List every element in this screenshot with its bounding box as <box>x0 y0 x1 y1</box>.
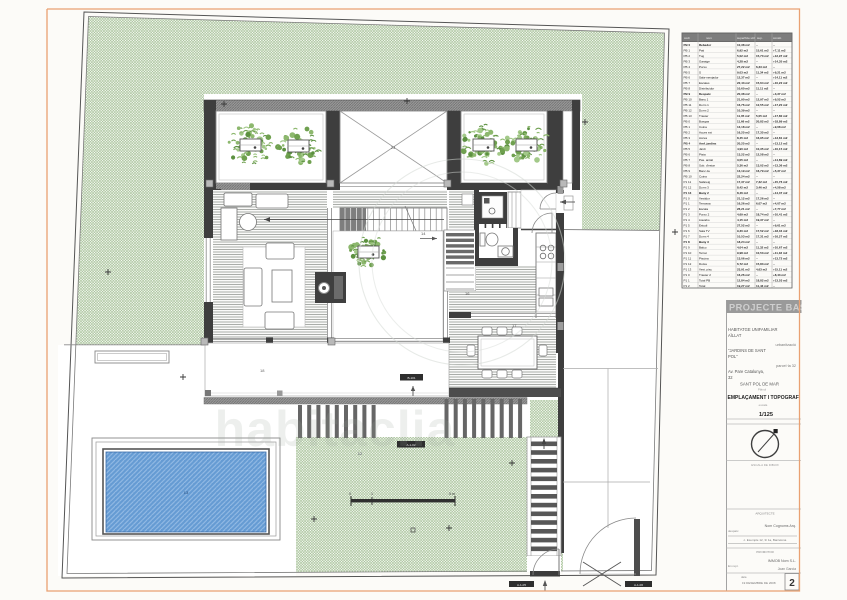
svg-text:9,98 m2: 9,98 m2 <box>737 251 748 255</box>
svg-text:4,63 m2: 4,63 m2 <box>756 267 767 271</box>
svg-text:--: -- <box>773 262 775 266</box>
svg-text:--: -- <box>773 196 775 200</box>
svg-text:--: -- <box>773 218 775 222</box>
svg-text:PB 7: PB 7 <box>684 81 691 85</box>
svg-text:15,61 m2: 15,61 m2 <box>756 48 769 52</box>
svg-text:P1 11: P1 11 <box>684 257 692 261</box>
svg-text:11,34 m2: 11,34 m2 <box>756 70 769 74</box>
svg-text:Dutxa: Dutxa <box>699 262 707 266</box>
svg-text:17,52 m2: 17,52 m2 <box>756 229 769 233</box>
svg-text:--: -- <box>756 273 758 277</box>
svg-text:P1 0: P1 0 <box>684 196 691 200</box>
svg-text:PB 0: PB 0 <box>684 120 691 124</box>
svg-text:23,91 m2: 23,91 m2 <box>737 267 750 271</box>
svg-text:13: 13 <box>184 490 189 495</box>
svg-text:16,76 m2: 16,76 m2 <box>737 103 750 107</box>
svg-text:8,46 m2: 8,46 m2 <box>737 191 748 195</box>
svg-text:--: -- <box>756 76 758 80</box>
svg-text:P1 11: P1 11 <box>684 180 692 184</box>
svg-text:despatx: despatx <box>728 529 739 533</box>
svg-text:P1 13: P1 13 <box>684 267 692 271</box>
svg-text:escala: escala <box>759 403 768 407</box>
svg-text:+12,97 m2: +12,97 m2 <box>773 54 788 58</box>
svg-text:1/125: 1/125 <box>759 412 773 418</box>
svg-text:+9,52 m2: +9,52 m2 <box>773 98 786 102</box>
svg-text:AÏLLAT: AÏLLAT <box>728 333 742 338</box>
svg-text:+4,07 m2: +4,07 m2 <box>773 202 786 206</box>
svg-text:12,37 m2: 12,37 m2 <box>737 76 750 80</box>
svg-text:27,52 m2: 27,52 m2 <box>737 224 750 228</box>
svg-text:PB 6: PB 6 <box>684 152 691 156</box>
svg-text:18,82 m2: 18,82 m2 <box>756 278 769 282</box>
svg-text:6,33 m2: 6,33 m2 <box>756 65 767 69</box>
svg-text:PB 12: PB 12 <box>684 109 693 113</box>
svg-text:Traster: Traster <box>699 114 708 118</box>
svg-text:--: -- <box>756 59 758 63</box>
svg-text:10,53 m2: 10,53 m2 <box>737 235 750 239</box>
svg-text:PB 3: PB 3 <box>684 59 691 63</box>
svg-text:16,26 m2: 16,26 m2 <box>737 273 750 277</box>
svg-text:Banc de: Banc de <box>699 169 710 173</box>
svg-text:Jardi: Jardi <box>699 147 706 151</box>
svg-text:Dorm 4: Dorm 4 <box>699 235 709 239</box>
svg-text:5,36 m2: 5,36 m2 <box>737 163 748 167</box>
svg-text:+18,89 m2: +18,89 m2 <box>773 120 788 124</box>
svg-text:13,02 m2: 13,02 m2 <box>756 163 769 167</box>
svg-text:ARQUITECTE: ARQUITECTE <box>755 512 774 516</box>
svg-text:P1 7: P1 7 <box>684 235 691 239</box>
svg-text:+14,89 m2: +14,89 m2 <box>773 158 788 162</box>
svg-text:Rebedor: Rebedor <box>699 43 712 47</box>
svg-text:+3,37 m2: +3,37 m2 <box>773 92 786 96</box>
svg-text:+10,22 m2: +10,22 m2 <box>773 81 788 85</box>
svg-text:A-1-05: A-1-05 <box>517 583 526 587</box>
svg-text:11,43 m2: 11,43 m2 <box>756 284 769 288</box>
svg-text:PB 10: PB 10 <box>684 174 693 178</box>
svg-text:P1 12: P1 12 <box>684 262 692 266</box>
svg-text:Dorm 2: Dorm 2 <box>699 109 709 113</box>
svg-text:Sala TV: Sala TV <box>699 229 710 233</box>
svg-text:11,05 m2: 11,05 m2 <box>737 114 750 118</box>
svg-text:15,64 m2: 15,64 m2 <box>756 81 769 85</box>
svg-text:12,97 m2: 12,97 m2 <box>756 98 769 102</box>
svg-text:16,95 m2: 16,95 m2 <box>756 136 769 140</box>
svg-text:IMMOB Nom S.L.: IMMOB Nom S.L. <box>768 559 796 563</box>
svg-text:Llavabo: Llavabo <box>699 218 710 222</box>
svg-text:15,83 m2: 15,83 m2 <box>756 262 769 266</box>
svg-text:5,02 m2: 5,02 m2 <box>737 54 748 58</box>
svg-text:Escala: Escala <box>699 207 708 211</box>
svg-text:21,90 m2: 21,90 m2 <box>737 98 750 102</box>
svg-text:B-101: B-101 <box>407 376 415 380</box>
svg-text:17,35 m2: 17,35 m2 <box>756 131 769 135</box>
svg-text:--: -- <box>756 207 758 211</box>
svg-text:Acces ext: Acces ext <box>699 131 712 135</box>
svg-text:+7,11 m2: +7,11 m2 <box>773 48 786 52</box>
svg-text:11,11 m2: 11,11 m2 <box>756 87 769 91</box>
svg-text:+4,58 m2: +4,58 m2 <box>773 185 786 189</box>
svg-text:"JARDINS DE SANT: "JARDINS DE SANT <box>728 348 766 353</box>
svg-text:P1 10: P1 10 <box>684 251 692 255</box>
svg-text:5,05 m2: 5,05 m2 <box>756 114 767 118</box>
svg-text:--: -- <box>756 174 758 178</box>
svg-text:16,79 m2: 16,79 m2 <box>756 169 769 173</box>
svg-text:20,38 m2: 20,38 m2 <box>737 92 750 96</box>
svg-text:Traster 2: Traster 2 <box>699 273 711 277</box>
svg-text:Dorm 3: Dorm 3 <box>699 185 709 189</box>
svg-text:Amf. jardins: Amf. jardins <box>699 141 717 145</box>
svg-text:6,72 m2: 6,72 m2 <box>737 262 748 266</box>
svg-text:5 m: 5 m <box>449 492 455 496</box>
svg-text:16,25 m2: 16,25 m2 <box>737 131 750 135</box>
svg-text:PB 10: PB 10 <box>684 98 693 102</box>
svg-text:+13,72 m2: +13,72 m2 <box>773 257 788 261</box>
svg-text:PB 2: PB 2 <box>684 54 691 58</box>
svg-text:P1 2: P1 2 <box>684 284 691 288</box>
svg-text:+18,04 m2: +18,04 m2 <box>773 229 788 233</box>
svg-text:constr.: constr. <box>773 36 782 40</box>
svg-text:18,24 m2: 18,24 m2 <box>737 240 750 244</box>
svg-text:6,92 m2: 6,92 m2 <box>737 48 748 52</box>
svg-text:superficie util: superficie util <box>737 36 755 40</box>
svg-text:PB 5: PB 5 <box>684 70 691 74</box>
svg-text:+10,41 m2: +10,41 m2 <box>773 213 788 217</box>
svg-text:PB 6: PB 6 <box>684 76 691 80</box>
svg-text:PB 0: PB 0 <box>684 43 691 47</box>
svg-text:Terrat: Terrat <box>699 251 707 255</box>
svg-text:Bany 3: Bany 3 <box>699 240 709 244</box>
svg-text:Buegas: Buegas <box>699 120 710 124</box>
svg-text:--: -- <box>773 240 775 244</box>
svg-text:SANT POL DE MAR: SANT POL DE MAR <box>740 382 779 387</box>
svg-text:HABITATGE UNIFAMILIAR: HABITATGE UNIFAMILIAR <box>728 327 777 332</box>
svg-text:15,70 m2: 15,70 m2 <box>756 54 769 58</box>
svg-text:P1 9: P1 9 <box>684 246 691 250</box>
svg-text:PB 9: PB 9 <box>684 169 691 173</box>
svg-text:10,60 m2: 10,60 m2 <box>737 87 750 91</box>
svg-text:PB 1: PB 1 <box>684 125 691 129</box>
svg-text:--: -- <box>756 125 758 129</box>
svg-text:S: S <box>699 70 701 74</box>
svg-text:Total: Total <box>699 284 706 288</box>
svg-text:19,27 m2: 19,27 m2 <box>737 284 750 288</box>
svg-text:+7,77 m2: +7,77 m2 <box>773 207 786 211</box>
svg-text:Dorm 1: Dorm 1 <box>699 103 709 107</box>
svg-text:--: -- <box>756 240 758 244</box>
svg-text:PB 11: PB 11 <box>684 103 692 107</box>
svg-text:Tug: Tug <box>699 54 704 58</box>
svg-text:PB 4: PB 4 <box>684 65 691 69</box>
svg-text:Despatx: Despatx <box>699 92 711 96</box>
svg-text:+9,08 m2: +9,08 m2 <box>773 125 786 129</box>
svg-text:A-1-06: A-1-06 <box>634 583 643 587</box>
svg-text:+5,37 m2: +5,37 m2 <box>773 169 786 173</box>
svg-text:PB 3: PB 3 <box>684 136 691 140</box>
svg-text:--: -- <box>756 43 758 47</box>
svg-text:--: -- <box>773 43 775 47</box>
svg-text:c. Exemple 12, 3r 1a, Barcelon: c. Exemple 12, 3r 1a, Barcelona <box>744 538 787 542</box>
svg-text:--: -- <box>773 87 775 91</box>
svg-text:+9,61 m2: +9,61 m2 <box>773 224 786 228</box>
svg-text:Total PB: Total PB <box>699 278 710 282</box>
svg-text:Pista: Pista <box>699 152 706 156</box>
svg-text:+13,53 m2: +13,53 m2 <box>773 278 788 282</box>
svg-text:parcel·la 32: parcel·la 32 <box>776 364 796 368</box>
svg-text:10,38 m2: 10,38 m2 <box>737 43 750 47</box>
svg-text:P1 13: P1 13 <box>684 191 692 195</box>
svg-text:19,37 m2: 19,37 m2 <box>756 218 769 222</box>
svg-text:PROMOTOR: PROMOTOR <box>756 550 774 554</box>
svg-text:20,82 m2: 20,82 m2 <box>756 120 769 124</box>
svg-text:P1 1: P1 1 <box>684 202 691 206</box>
svg-text:20,25 m2: 20,25 m2 <box>737 141 750 145</box>
svg-text:7,32 m2: 7,32 m2 <box>756 180 767 184</box>
svg-text:14: 14 <box>421 231 426 236</box>
svg-text:22,43 m2: 22,43 m2 <box>737 81 750 85</box>
svg-text:Cuina: Cuina <box>699 174 707 178</box>
svg-text:sup.: sup. <box>757 36 763 40</box>
svg-text:Joan Garcia: Joan Garcia <box>778 567 796 571</box>
svg-text:22,24 m2: 22,24 m2 <box>737 174 750 178</box>
svg-text:Distribuidor: Distribuidor <box>699 87 714 91</box>
svg-text:--: -- <box>756 191 758 195</box>
svg-text:En repr.: En repr. <box>728 564 739 568</box>
svg-text:4,69 m2: 4,69 m2 <box>737 213 748 217</box>
svg-text:17: 17 <box>512 323 517 328</box>
svg-text:PB 7: PB 7 <box>684 158 691 162</box>
svg-text:Nom Cognoms Arq.: Nom Cognoms Arq. <box>765 524 796 528</box>
svg-text:10,35 m2: 10,35 m2 <box>756 147 769 151</box>
svg-text:Garatge: Garatge <box>699 59 710 63</box>
svg-text:13,18 m2: 13,18 m2 <box>737 125 750 129</box>
svg-text:--: -- <box>756 158 758 162</box>
svg-text:Plànol: Plànol <box>758 388 767 392</box>
svg-text:Av. Pare Catalunya,: Av. Pare Catalunya, <box>728 369 764 374</box>
svg-text:Sala-menjador: Sala-menjador <box>699 76 719 80</box>
svg-text:13,22 m2: 13,22 m2 <box>737 152 750 156</box>
svg-text:9,30 m2: 9,30 m2 <box>737 229 748 233</box>
svg-text:+17,80 m2: +17,80 m2 <box>773 114 788 118</box>
svg-text:9,03 m2: 9,03 m2 <box>737 70 748 74</box>
svg-text:PB 5: PB 5 <box>684 147 691 151</box>
svg-text:8,42 m2: 8,42 m2 <box>737 185 748 189</box>
svg-text:3,05 m2: 3,05 m2 <box>737 158 748 162</box>
svg-text:--: -- <box>773 174 775 178</box>
svg-text:+13,81 m2: +13,81 m2 <box>773 136 788 140</box>
svg-text:+14,35 m2: +14,35 m2 <box>773 59 788 63</box>
svg-text:nom: nom <box>706 36 712 40</box>
svg-text:+17,20 m2: +17,20 m2 <box>773 103 788 107</box>
svg-text:+11,18 m2: +11,18 m2 <box>773 251 788 255</box>
svg-text:EMPLAÇAMENT I TOPOGRAF: EMPLAÇAMENT I TOPOGRAF <box>728 395 799 401</box>
svg-text:P1 12: P1 12 <box>684 185 692 189</box>
svg-text:18: 18 <box>260 368 265 373</box>
svg-text:19 DESEMBRE DE 2008: 19 DESEMBRE DE 2008 <box>742 581 776 585</box>
svg-text:18,74 m2: 18,74 m2 <box>756 213 769 217</box>
svg-text:Balco: Balco <box>699 246 707 250</box>
svg-text:Porxo: Porxo <box>699 65 707 69</box>
svg-text:23: 23 <box>391 145 396 150</box>
svg-text:--: -- <box>773 152 775 156</box>
svg-text:PB 8: PB 8 <box>684 87 691 91</box>
svg-text:P1 2: P1 2 <box>684 207 691 211</box>
svg-text:--: -- <box>756 257 758 261</box>
svg-text:PB 1: PB 1 <box>684 48 691 52</box>
svg-text:POL": POL" <box>728 354 738 359</box>
svg-text:Acces: Acces <box>699 136 708 140</box>
svg-text:13,06 m2: 13,06 m2 <box>737 257 750 261</box>
svg-text:16,26 m2: 16,26 m2 <box>737 202 750 206</box>
svg-text:17,37 m2: 17,37 m2 <box>737 180 750 184</box>
svg-text:10,39 m2: 10,39 m2 <box>737 109 750 113</box>
svg-text:+16,27 m2: +16,27 m2 <box>773 235 788 239</box>
svg-text:+13,36 m2: +13,36 m2 <box>773 163 788 167</box>
svg-text:PB 2: PB 2 <box>684 131 691 135</box>
svg-text:--: -- <box>773 284 775 288</box>
svg-text:11,32 m2: 11,32 m2 <box>756 246 769 250</box>
svg-text:Cuina: Cuina <box>699 125 707 129</box>
svg-text:PB 9: PB 9 <box>684 92 691 96</box>
svg-text:Vest. pisc: Vest. pisc <box>699 267 712 271</box>
svg-text:+14,37 m2: +14,37 m2 <box>773 191 788 195</box>
svg-text:P1 4: P1 4 <box>684 218 691 222</box>
svg-text:--: -- <box>756 224 758 228</box>
svg-text:P1 5: P1 5 <box>684 224 691 228</box>
svg-text:4,15 m2: 4,15 m2 <box>737 218 748 222</box>
svg-text:+8,43 m2: +8,43 m2 <box>773 273 786 277</box>
svg-text:26,21 m2: 26,21 m2 <box>737 207 750 211</box>
svg-text:--: -- <box>756 109 758 113</box>
svg-text:32: 32 <box>728 375 733 380</box>
svg-text:P1 8: P1 8 <box>684 240 691 244</box>
svg-text:4,90 m2: 4,90 m2 <box>737 147 748 151</box>
svg-text:--: -- <box>773 131 775 135</box>
svg-text:Bany 1: Bany 1 <box>699 98 709 102</box>
svg-text:3,46 m2: 3,46 m2 <box>756 185 767 189</box>
svg-text:PB 8: PB 8 <box>684 163 691 167</box>
svg-text:17,26 m2: 17,26 m2 <box>756 196 769 200</box>
svg-text:+13,12 m2: +13,12 m2 <box>773 141 788 145</box>
svg-text:P1 3: P1 3 <box>684 213 691 217</box>
svg-text:4,04 m2: 4,04 m2 <box>737 246 748 250</box>
svg-text:Escales: Escales <box>699 81 710 85</box>
svg-text:27,22 m2: 27,22 m2 <box>737 65 750 69</box>
svg-text:Pas. antial: Pas. antial <box>699 158 713 162</box>
svg-text:12,55 m2: 12,55 m2 <box>756 103 769 107</box>
svg-text:P1 1: P1 1 <box>684 278 691 282</box>
svg-text:--: -- <box>773 65 775 69</box>
svg-text:Sob. d'estar: Sob. d'estar <box>699 163 715 167</box>
svg-text:4,28 m2: 4,28 m2 <box>737 59 748 63</box>
svg-text:8,45 m2: 8,45 m2 <box>737 136 748 140</box>
svg-text:Piscina: Piscina <box>699 257 709 261</box>
svg-text:habitaclia: habitaclia <box>215 401 456 457</box>
svg-text:ESCALA DE DIBUIX: ESCALA DE DIBUIX <box>751 463 779 467</box>
svg-text:--: -- <box>756 141 758 145</box>
svg-text:+15,11 m2: +15,11 m2 <box>773 267 788 271</box>
svg-text:codi: codi <box>684 36 690 40</box>
svg-text:PB 4: PB 4 <box>684 141 691 145</box>
svg-text:21,12 m2: 21,12 m2 <box>737 196 750 200</box>
svg-text:PROJECTE BAS: PROJECTE BAS <box>729 303 806 313</box>
svg-text:17,31 m2: 17,31 m2 <box>756 235 769 239</box>
svg-text:+14,11 m2: +14,11 m2 <box>773 76 788 80</box>
svg-text:11,66 m2: 11,66 m2 <box>737 120 750 124</box>
svg-text:data: data <box>741 575 747 579</box>
svg-text:12,84 m2: 12,84 m2 <box>737 278 750 282</box>
svg-text:16: 16 <box>465 291 470 296</box>
svg-text:12,58 m2: 12,58 m2 <box>756 152 769 156</box>
svg-text:PB 13: PB 13 <box>684 114 693 118</box>
svg-text:13,19 m2: 13,19 m2 <box>737 169 750 173</box>
svg-text:2: 2 <box>789 578 795 589</box>
svg-text:Safareig: Safareig <box>699 180 711 184</box>
svg-text:Bany 2: Bany 2 <box>699 191 709 195</box>
svg-text:1: 1 <box>371 492 373 496</box>
svg-text:Terrassa: Terrassa <box>699 202 711 206</box>
svg-text:Estudi: Estudi <box>699 224 708 228</box>
svg-text:P1 6: P1 6 <box>684 229 691 233</box>
svg-text:+10,67 m2: +10,67 m2 <box>773 246 788 250</box>
svg-text:Pati: Pati <box>699 48 705 52</box>
svg-text:6,07 m2: 6,07 m2 <box>756 202 767 206</box>
svg-text:urbanització: urbanització <box>776 343 796 347</box>
svg-text:+10,15 m2: +10,15 m2 <box>773 147 788 151</box>
svg-text:+15,76 m2: +15,76 m2 <box>773 180 788 184</box>
svg-text:0: 0 <box>349 492 351 496</box>
svg-text:Porxo 2: Porxo 2 <box>699 213 710 217</box>
svg-text:10,53 m2: 10,53 m2 <box>756 251 769 255</box>
svg-text:Vestidor: Vestidor <box>699 196 710 200</box>
svg-text:--: -- <box>773 109 775 113</box>
svg-text:P1 0: P1 0 <box>684 273 691 277</box>
svg-text:--: -- <box>756 92 758 96</box>
svg-text:+9,21 m2: +9,21 m2 <box>773 70 786 74</box>
